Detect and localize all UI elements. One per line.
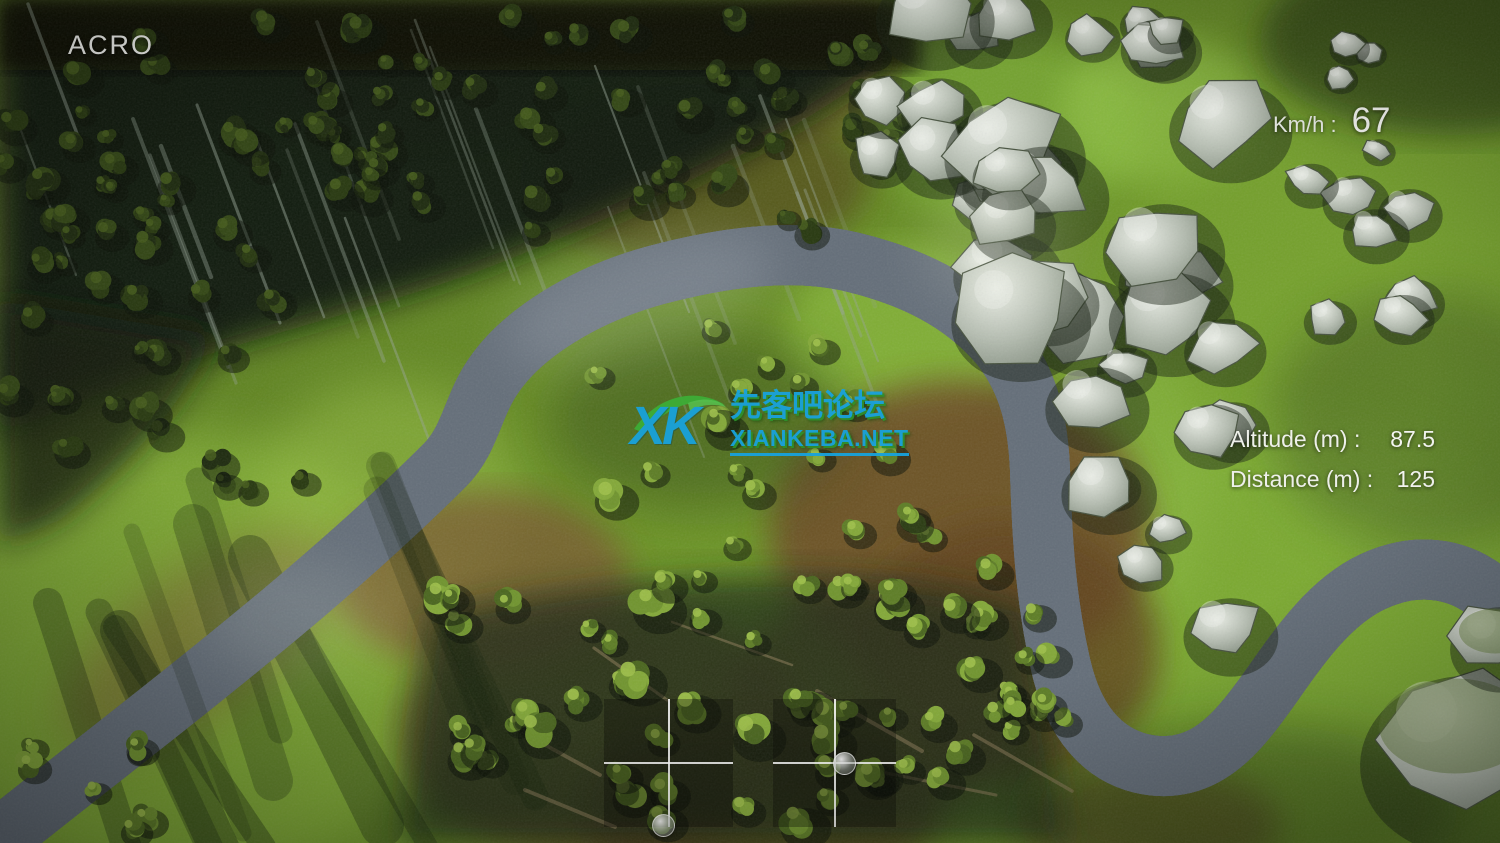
xk-logo: XK: [628, 389, 728, 461]
right-stick-indicator: [773, 699, 896, 827]
speed-value: 67: [1352, 101, 1391, 141]
distance-value: 125: [1397, 466, 1435, 493]
left-stick-indicator: [604, 699, 733, 827]
watermark-site-name: 先客吧论坛: [730, 389, 909, 423]
speed-label: Km/h :: [1273, 112, 1337, 138]
distance-label: Distance (m) :: [1230, 466, 1373, 493]
altitude-label: Altitude (m) :: [1230, 426, 1360, 453]
simulator-viewport: ACRO Km/h : 67 Altitude (m) : 87.5 Dista…: [0, 0, 1500, 843]
distance-readout: Distance (m) : 125: [1230, 466, 1435, 493]
right-stick-dot: [833, 752, 856, 775]
altitude-readout: Altitude (m) : 87.5: [1230, 426, 1435, 453]
speed-readout: Km/h : 67: [1273, 101, 1391, 141]
flight-mode-indicator: ACRO: [68, 30, 154, 61]
watermark: XK 先客吧论坛 XIANKEBA.NET: [628, 389, 909, 461]
watermark-site-url: XIANKEBA.NET: [730, 425, 909, 456]
crosshair-vertical-line: [668, 699, 670, 827]
logo-text: XK: [630, 399, 697, 453]
altitude-value: 87.5: [1390, 426, 1435, 453]
